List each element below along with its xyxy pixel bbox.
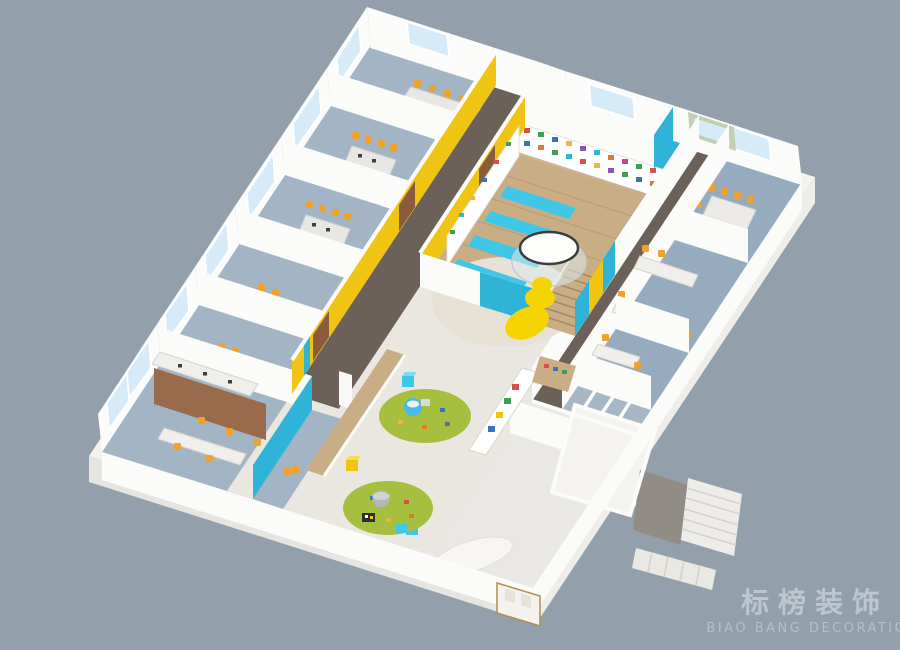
play-rug-1 (379, 389, 471, 443)
dome-top-ring (520, 232, 578, 264)
vestibule-chair (292, 466, 299, 473)
watermark-subtitle: BIAO BANG DECORATION (706, 621, 900, 636)
glass-dome (512, 232, 586, 286)
play-rug-2 (343, 481, 433, 535)
floorplan-render: 标榜装饰 BIAO BANG DECORATION (0, 0, 900, 650)
corridor-column (339, 371, 352, 409)
scene-canvas: 标榜装饰 BIAO BANG DECORATION (0, 0, 900, 650)
toy (362, 513, 375, 522)
watermark-title: 标榜装饰 (741, 586, 889, 619)
